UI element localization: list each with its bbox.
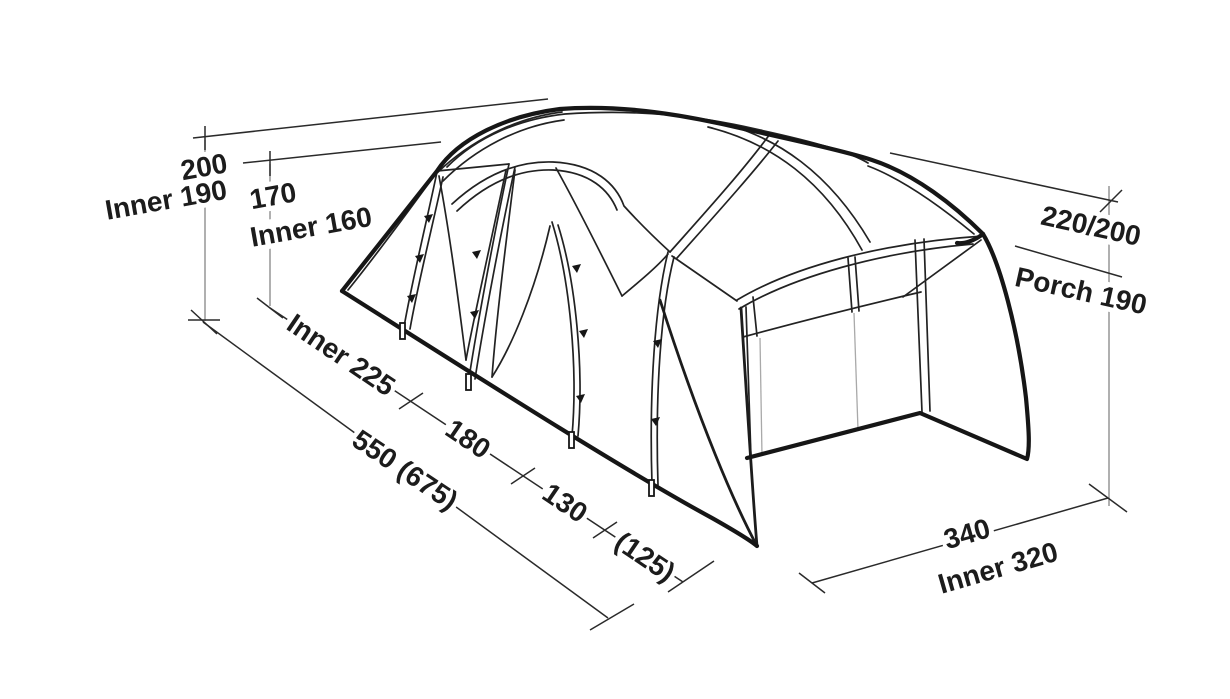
pole-clips bbox=[407, 214, 662, 426]
tent-line-art bbox=[0, 0, 1230, 699]
tent-dimension-diagram: 200 Inner 190 170 Inner 160 220/200 Porc… bbox=[0, 0, 1230, 699]
